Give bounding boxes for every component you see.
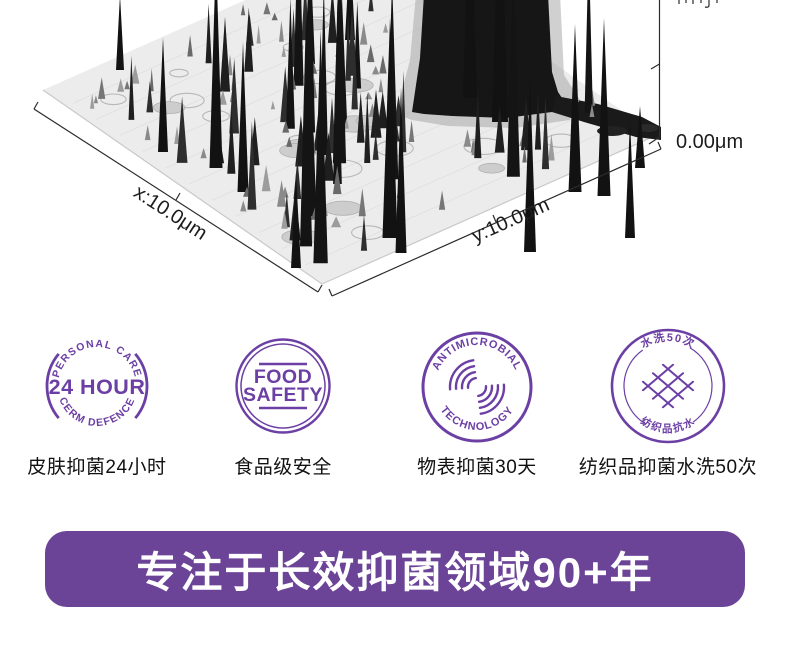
afm-plot-svg: x:10.0μm y:10.0μm 0.00μm [0,0,790,300]
afm-spike [585,0,593,113]
badge-antimicrobial-stamp: ANTIMICROBIAL TECHNOLOGY [419,329,535,445]
badge-inner-right-arc [690,348,712,422]
badge-inner-left-arc [624,350,646,424]
z-axis-label: 0.00μm [676,131,743,153]
afm-spike [116,0,124,70]
badge-arc-top-text: PERSONAL CARE [50,338,144,379]
badge-arc-bottom-text: 纺织品抗水 [638,414,697,435]
badge-caption-skin: 皮肤抑菌24小时 [0,452,197,479]
badge-center-text: 24 HOUR [49,375,146,399]
badge-textile-stamp: 水洗50次 纺织品抗水 [610,328,726,444]
slogan-text: 专注于长效抑菌领域90+年 [136,539,653,600]
slogan-banner: 专注于长效抑菌领域90+年 [45,531,745,607]
badge-skin-24-hour: PERSONAL CARE 24 HOUR CERM DEFENCE [39,328,155,444]
badge-caption-textile: 纺织品抑菌水洗50次 [568,452,768,479]
afm-mound [479,163,505,173]
afm-mound [153,102,185,114]
badge-caption-surface: 物表抑菌30天 [377,452,577,479]
afm-mound [324,201,361,215]
badge-food-safety-stamp: FOOD SAFETY [225,328,341,444]
badge-arc-top-text: ANTIMICROBIAL [430,336,524,372]
badge-arc-bottom-text: CERM DEFENCE [56,395,137,429]
badge-skin-24-hour-stamp: PERSONAL CARE 24 HOUR CERM DEFENCE [39,328,155,444]
badge-arc-bottom-text: TECHNOLOGY [438,404,517,433]
badge-food-safety: FOOD SAFETY [225,328,341,444]
badge-word-safety: SAFETY [243,384,323,406]
badge-antimicrobial-technology: ANTIMICROBIAL TECHNOLOGY [419,329,535,445]
badge-caption-food: 食品级安全 [183,452,383,479]
signal-waves-icon [450,360,504,413]
textile-weave-icon [643,365,693,408]
product-detail-page: x:10.0μm y:10.0μm 0.00μm PERSONAL CARE 2… [0,0,790,651]
badge-textile-wash-50: 水洗50次 纺织品抗水 [610,328,726,444]
afm-massif [412,0,566,118]
afm-plot: x:10.0μm y:10.0μm 0.00μm [0,0,790,300]
clipped-top-label-fragment [679,0,717,7]
